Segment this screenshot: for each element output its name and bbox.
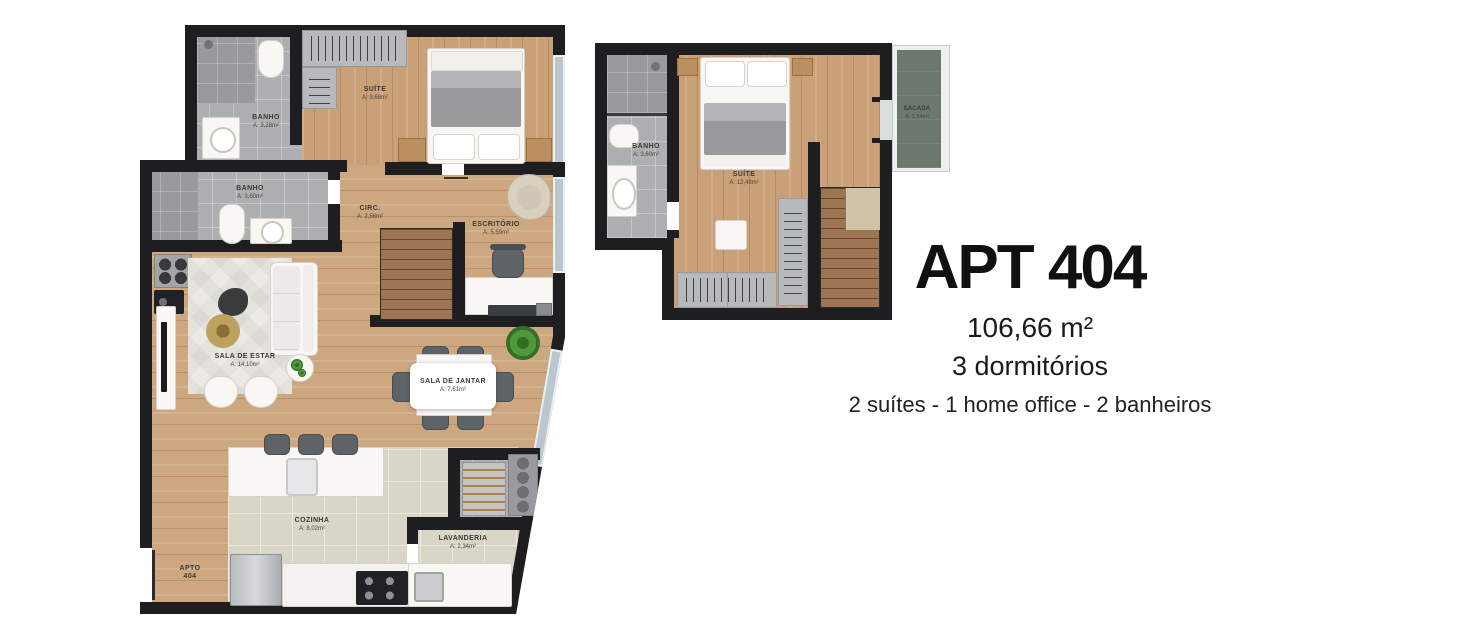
bed-pillow-right xyxy=(478,134,520,160)
entry-door-leaf xyxy=(152,550,155,600)
outside-cover xyxy=(593,250,662,325)
armchair-2 xyxy=(244,376,278,408)
apartment-features: 2 suítes - 1 home office - 2 banheiros xyxy=(849,392,1212,418)
room-area: A: 3,60m² xyxy=(596,152,696,159)
side-table-plant2-icon xyxy=(298,369,306,377)
toilet xyxy=(258,40,284,78)
bed-cushions xyxy=(431,51,523,71)
balcony-door-glass xyxy=(880,100,892,140)
toilet-2 xyxy=(219,204,245,244)
apartment-bedrooms: 3 dormitórios xyxy=(952,351,1108,382)
laundry-sink xyxy=(414,572,444,602)
sofa-back xyxy=(303,265,314,352)
shower-head-icon xyxy=(204,40,213,49)
room-area: A: 7,61m² xyxy=(440,387,466,394)
apartment-total-area: 106,66 m² xyxy=(967,312,1093,344)
office-chair-back xyxy=(490,244,526,250)
bed-pillow-left xyxy=(433,134,475,160)
sink-bowl-3 xyxy=(612,178,636,210)
wall-condenser-left xyxy=(448,448,460,518)
bed-suite2 xyxy=(700,57,790,170)
sink-bowl xyxy=(210,127,236,153)
room-label-cozinha: COZINHA A: 8,02m² xyxy=(262,517,362,534)
apartment-info: APT 404 106,66 m² 3 dormitórios 2 suítes… xyxy=(820,237,1240,418)
room-label-sacada: SACADA A: 1,54m² xyxy=(892,106,942,121)
wall-step-2 xyxy=(595,238,674,250)
room-area: A: 12,48m² xyxy=(694,180,794,187)
room-area: A: 3,28m² xyxy=(216,123,316,130)
room-label-lavanderia: LAVANDERIA A: 2,34m² xyxy=(413,535,513,552)
wardrobe xyxy=(302,30,407,67)
condenser-unit xyxy=(462,462,506,516)
wall-top-2 xyxy=(595,43,892,55)
room-area: A: 9,68m² xyxy=(325,95,425,102)
bed2-pillow-right xyxy=(747,61,787,87)
closet-vertical-rods xyxy=(784,210,802,295)
lounge-armchair-seat xyxy=(517,185,542,210)
bar-stool-1 xyxy=(264,434,290,455)
room-label-sala-jantar: SALA DE JANTAR A: 7,61m² xyxy=(410,363,496,409)
room-label-escritorio: ESCRITÓRIO A: 5,59m² xyxy=(446,221,546,238)
sofa xyxy=(270,262,318,356)
office-chair xyxy=(492,248,524,278)
balcony-door-frame-a xyxy=(872,97,880,102)
room-name: LAVANDERIA xyxy=(413,535,513,543)
ottoman xyxy=(715,220,747,250)
room-area: A: 2,56m² xyxy=(320,214,420,221)
stairs-landing xyxy=(845,188,880,230)
room-label-banho-up: BANHO A: 3,60m² xyxy=(596,143,696,160)
nightstand-left xyxy=(398,138,426,162)
door-suite-leaf xyxy=(444,177,468,179)
coffee-table-gold xyxy=(206,314,240,348)
bed2-blanket xyxy=(704,103,786,155)
room-name: ESCRITÓRIO xyxy=(446,221,546,229)
balcony-door-frame-b xyxy=(872,138,880,143)
fridge xyxy=(230,554,282,606)
wall-step xyxy=(140,160,347,172)
lower-floor-plan: BANHO A: 3,28m² SUÍTE A: 9,68m² BANHO A:… xyxy=(140,22,577,622)
door-bath-2 xyxy=(667,202,679,230)
nightstand-left-2 xyxy=(677,58,698,76)
room-label-sala-estar: SALA DE ESTAR A: 14,10m² xyxy=(195,353,295,370)
wall-laundry-top xyxy=(407,517,540,530)
sofa-cushions xyxy=(273,266,300,351)
entry-opening xyxy=(140,548,152,602)
bar-stool-3 xyxy=(332,434,358,455)
shower-head-icon-2 xyxy=(651,62,660,71)
wall-stairs-right xyxy=(453,222,465,326)
bed-blanket xyxy=(431,71,521,127)
nightstand-right-2 xyxy=(792,58,813,76)
room-name: SUÍTE xyxy=(694,171,794,179)
room-name: BANHO xyxy=(596,143,696,151)
room-name: COZINHA xyxy=(262,517,362,525)
office-printer xyxy=(536,303,552,316)
room-area: A: 14,10m² xyxy=(195,362,295,369)
room-area: A: 8,02m² xyxy=(262,526,362,533)
room-name: SALA DE JANTAR xyxy=(420,378,486,386)
grill-cooktop xyxy=(154,254,192,288)
room-label-circ: CIRC. A: 2,56m² xyxy=(320,205,420,222)
room-area: A: 2,34m² xyxy=(413,544,513,551)
staircase-lower xyxy=(380,228,453,320)
stove xyxy=(356,571,408,605)
room-label-banho1: BANHO A: 3,28m² xyxy=(216,114,316,131)
apartment-title: APT 404 xyxy=(915,237,1146,299)
bed2-pillow-left xyxy=(705,61,745,87)
room-area: A: 3,60m² xyxy=(200,194,300,201)
room-area: A: 1,54m² xyxy=(892,114,942,121)
dining-plant xyxy=(506,326,540,360)
room-name: SUÍTE xyxy=(325,86,425,94)
room-name: BANHO xyxy=(216,114,316,122)
armchair-1 xyxy=(204,376,238,408)
wall-right-c xyxy=(553,273,565,340)
room-label-suite-up: SUÍTE A: 12,48m² xyxy=(694,171,794,188)
room-label-apto: APTO 404 xyxy=(158,565,222,582)
apto-line1: APTO xyxy=(158,565,222,573)
sink-bowl-2 xyxy=(261,221,284,244)
room-label-suite1: SUÍTE A: 9,68m² xyxy=(325,86,425,103)
room-name: BANHO xyxy=(200,185,300,193)
room-name: SACADA xyxy=(892,106,942,113)
door-bath2 xyxy=(328,180,340,204)
room-name: CIRC. xyxy=(320,205,420,213)
room-area: A: 5,59m² xyxy=(446,230,546,237)
room-label-banho2: BANHO A: 3,60m² xyxy=(200,185,300,202)
wardrobe-rods xyxy=(311,36,398,61)
floorplan-sheet: BANHO A: 3,28m² SUÍTE A: 9,68m² BANHO A:… xyxy=(0,0,1457,627)
closet-vertical xyxy=(778,198,808,306)
shower-divider xyxy=(607,113,667,116)
condenser-fans xyxy=(508,454,538,516)
wall-suite-stairs xyxy=(808,142,820,308)
room-name: SALA DE ESTAR xyxy=(195,353,295,361)
island-sink xyxy=(286,458,318,496)
window-office xyxy=(553,177,565,273)
bed-suite1 xyxy=(427,48,525,164)
apto-line2: 404 xyxy=(158,573,222,581)
tv xyxy=(161,322,167,392)
window-suite xyxy=(553,55,565,165)
bed2-foot xyxy=(704,155,786,167)
closet-divider xyxy=(727,273,728,307)
wall-upper-left xyxy=(185,25,197,172)
bar-stool-2 xyxy=(298,434,324,455)
closet-bottom xyxy=(677,272,777,308)
wall-left xyxy=(140,160,152,614)
wall-right-a xyxy=(553,25,565,55)
wall-bath2-bottom xyxy=(140,240,342,252)
nightstand-right xyxy=(526,138,552,162)
